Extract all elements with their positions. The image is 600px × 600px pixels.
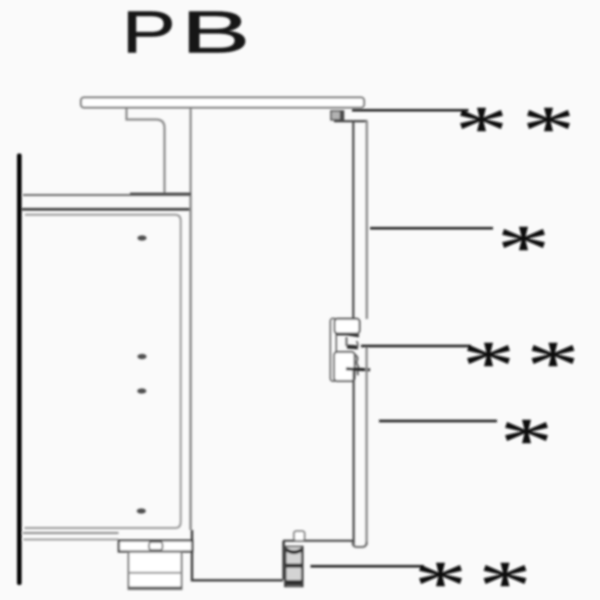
svg-text:P: P bbox=[122, 0, 176, 66]
svg-text:B: B bbox=[181, 0, 251, 65]
